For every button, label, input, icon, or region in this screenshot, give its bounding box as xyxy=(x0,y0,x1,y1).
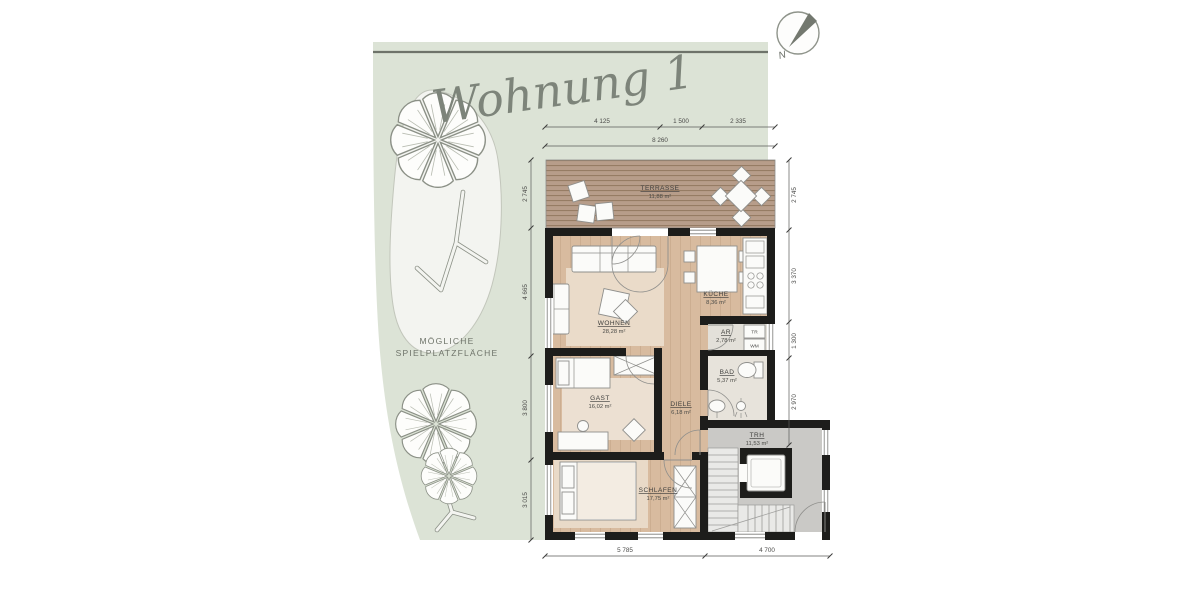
window xyxy=(822,430,830,455)
dim-bottom-0: 5 785 xyxy=(617,547,633,554)
sofa xyxy=(572,246,656,272)
wall-segment xyxy=(545,348,626,356)
stairwell xyxy=(708,448,794,532)
wall-segment xyxy=(545,228,612,236)
window xyxy=(575,532,605,540)
dim-right-3: 2 970 xyxy=(791,394,798,410)
floor-plan-drawing: MÖGLICHE SPIELPLATZFLÄCHE Wohnung 1 N TE… xyxy=(0,0,1200,600)
wall-segment xyxy=(700,420,830,428)
room-label-kueche: KÜCHE xyxy=(703,290,728,298)
window xyxy=(735,532,765,540)
wall-segment xyxy=(668,228,690,236)
wall-segment xyxy=(545,532,575,540)
wall-segment xyxy=(700,316,775,324)
wardrobe xyxy=(674,466,696,528)
window xyxy=(545,298,553,348)
compass-icon: N xyxy=(777,12,819,62)
dining-chair xyxy=(684,272,695,283)
washer-label: WM xyxy=(750,344,759,350)
window xyxy=(822,490,830,512)
playground-label-line1: MÖGLICHE xyxy=(420,336,475,346)
room-label-terrasse: TERRASSE xyxy=(640,185,679,192)
wall-segment xyxy=(545,452,664,460)
window xyxy=(545,465,553,515)
room-area-schlafen: 17,75 m² xyxy=(647,496,670,502)
dim-left-2: 3 800 xyxy=(522,400,529,416)
kitchen-counter xyxy=(743,238,767,314)
wall-segment xyxy=(765,532,795,540)
dining-chair xyxy=(684,251,695,262)
wall-segment xyxy=(822,420,830,430)
dim-bottom-1: 4 700 xyxy=(759,547,775,554)
window xyxy=(638,532,663,540)
desk xyxy=(558,432,608,450)
pillow xyxy=(562,466,574,488)
dim-left-0: 2 745 xyxy=(522,186,529,202)
wall-segment xyxy=(716,228,775,236)
room-area-kueche: 8,36 m² xyxy=(706,300,726,306)
floor-plan-page: MÖGLICHE SPIELPLATZFLÄCHE Wohnung 1 N TE… xyxy=(0,0,1200,600)
wall-segment xyxy=(700,455,708,532)
room-label-bad: BAD xyxy=(720,369,735,376)
wall-segment xyxy=(767,228,775,324)
lounger xyxy=(595,202,614,221)
lounger xyxy=(577,204,596,223)
room-area-trh: 11,53 m² xyxy=(746,441,769,447)
room-area-terrasse: 11,88 m² xyxy=(649,194,672,200)
wall-segment xyxy=(545,432,553,465)
room-label-ar: AR xyxy=(721,329,731,336)
window xyxy=(545,385,553,432)
elevator xyxy=(739,448,792,498)
dim-right-0: 2 745 xyxy=(791,187,798,203)
room-label-trh: TRH xyxy=(750,432,765,439)
pillow xyxy=(558,361,569,385)
dim-top-1: 1 500 xyxy=(673,118,689,125)
wall-segment xyxy=(700,350,767,356)
room-area-wohnen: 28,28 m² xyxy=(603,329,626,335)
wall-segment xyxy=(700,416,708,430)
dim-right-1: 3 370 xyxy=(791,268,798,284)
dim-top-total: 8 260 xyxy=(652,137,668,144)
room-area-gast: 16,02 m² xyxy=(589,404,612,410)
wall-segment xyxy=(654,348,662,452)
room-label-gast: GAST xyxy=(590,395,610,402)
furniture-schlafen xyxy=(560,462,696,528)
dim-left-1: 4 665 xyxy=(522,284,529,300)
pillow xyxy=(562,492,574,514)
room-area-bad: 5,37 m² xyxy=(717,378,737,384)
dim-top-0: 4 125 xyxy=(594,118,610,125)
playground-label-line2: SPIELPLATZFLÄCHE xyxy=(396,348,499,358)
dim-top-2: 2 335 xyxy=(730,118,746,125)
dim-left-3: 3 015 xyxy=(522,492,529,508)
elevator-door-gap xyxy=(739,464,747,482)
wall-segment xyxy=(605,532,638,540)
desk-chair xyxy=(578,421,589,432)
room-area-ar: 2,78 m² xyxy=(716,338,736,344)
room-area-diele: 6,18 m² xyxy=(671,410,691,416)
wall-segment xyxy=(545,228,553,298)
wall-segment xyxy=(822,455,830,490)
room-label-schlafen: SCHLAFEN xyxy=(639,487,678,494)
stair-flight-bottom xyxy=(738,505,794,532)
window xyxy=(767,324,775,350)
room-label-wohnen: WOHNEN xyxy=(598,320,631,327)
window xyxy=(690,228,716,236)
room-label-diele: DIELE xyxy=(670,401,691,408)
wall-segment xyxy=(822,512,830,540)
wall-segment xyxy=(663,532,735,540)
dim-right-2: 1 300 xyxy=(791,333,798,349)
toilet-icon xyxy=(738,362,763,378)
dryer-label: TR xyxy=(751,330,758,336)
wall-segment xyxy=(767,350,775,428)
room-terrasse: TERRASSE 11,88 m² xyxy=(546,160,775,228)
wardrobe xyxy=(614,356,658,375)
blanket xyxy=(577,463,635,519)
dining-table xyxy=(697,246,737,292)
